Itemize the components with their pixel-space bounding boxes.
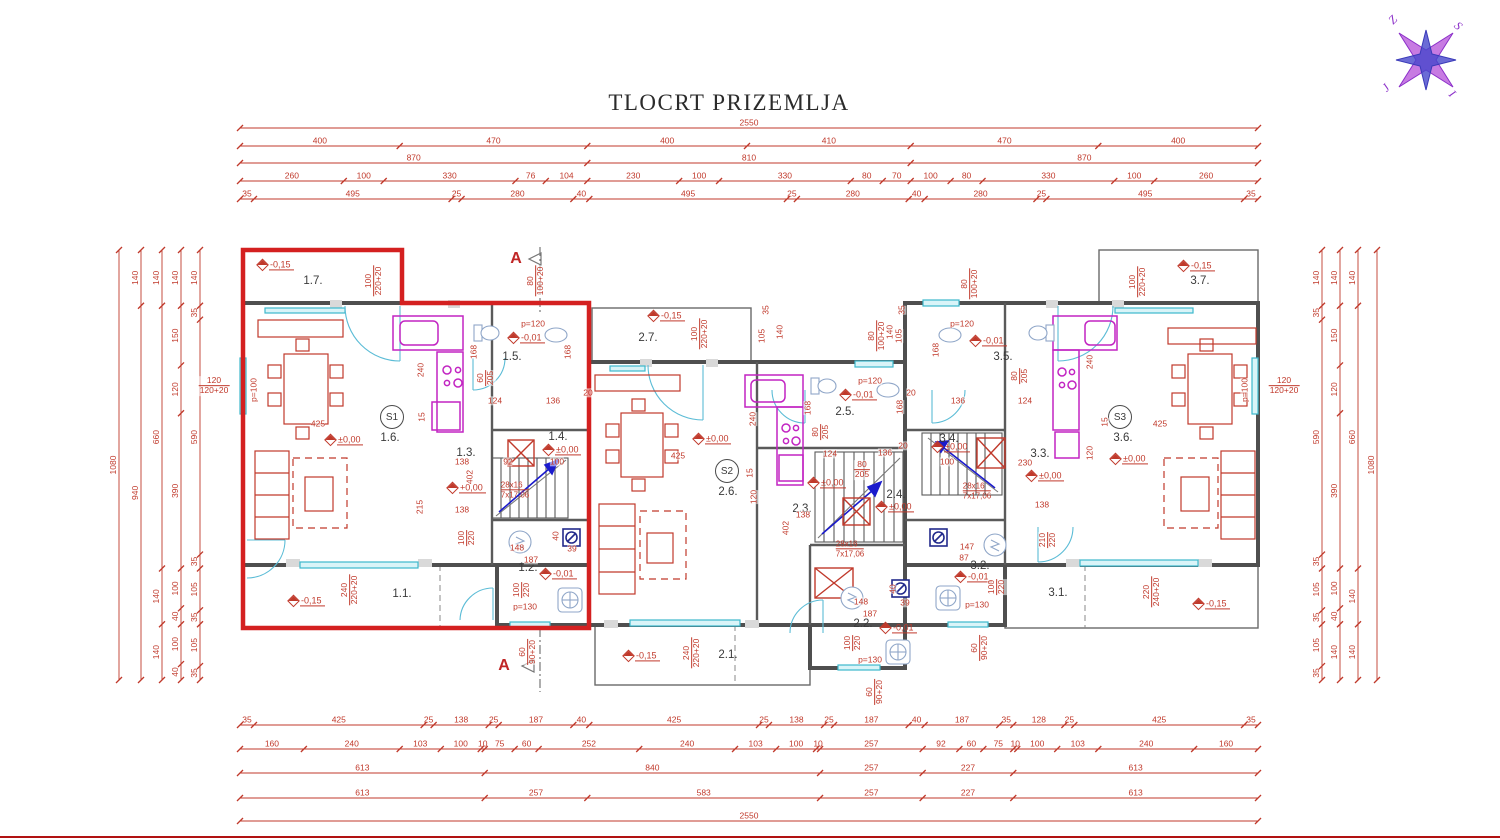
unit-badge: S2 — [715, 459, 739, 483]
annotation-denominator: 90+20 — [981, 635, 990, 661]
dimension-annotation: 210220 — [1038, 532, 1058, 548]
dimension-annotation: 105 — [894, 329, 903, 343]
dimension-annotation: 220240+20 — [1142, 577, 1162, 608]
annotation-denominator: 240+20 — [1153, 577, 1162, 608]
elevation-marker: -0,01 — [541, 568, 577, 579]
annotation-denominator: 120+20 — [199, 387, 230, 396]
dimension-annotation: 402 — [781, 521, 790, 535]
elevation-diamond-icon — [1192, 598, 1205, 611]
dimension-annotation: 100220 — [987, 579, 1007, 595]
annotation-denominator: 220+20 — [1139, 267, 1148, 298]
elevation-marker: -0,15 — [1194, 598, 1230, 609]
dimension-annotation: 100 — [550, 457, 564, 466]
dimension-annotation: 120 — [1085, 446, 1094, 460]
dimension-annotation: 124 — [823, 449, 837, 458]
elevation-value: -0,01 — [982, 335, 1007, 346]
unit-badge: S3 — [1108, 405, 1132, 429]
dimension-annotation: 148 — [854, 597, 868, 606]
elevation-diamond-icon — [692, 433, 705, 446]
stair-label: 28x167x17,06 — [963, 481, 991, 500]
elevation-value: ±0,00 — [1122, 453, 1148, 464]
dimension-annotation: 80205 — [1010, 368, 1030, 384]
annotation-denominator: 220+20 — [701, 319, 710, 350]
annotation-denominator: 120+20 — [1269, 387, 1300, 396]
dimension-annotation: 100220+20 — [1128, 267, 1148, 298]
elevation-marker: -0,01 — [509, 332, 545, 343]
dimension-annotation: p=130 — [858, 655, 882, 664]
dimension-annotation: 240220+20 — [682, 638, 702, 669]
dimension-annotation: 15 — [745, 468, 754, 477]
dimension-annotation: 100 — [940, 457, 954, 466]
elevation-marker: ±0,00 — [877, 501, 914, 512]
dimension-annotation: 136 — [546, 396, 560, 405]
elevation-marker: ±0,00 — [933, 441, 970, 452]
dimension-annotation: 100220 — [512, 582, 532, 598]
elevation-value: -0,15 — [269, 259, 294, 270]
elevation-diamond-icon — [324, 434, 337, 447]
dimension-annotation: 215 — [415, 500, 424, 514]
room-label: 3.1. — [1048, 587, 1067, 599]
dimension-annotation: 136 — [878, 448, 892, 457]
dimension-annotation: 40 — [888, 584, 897, 593]
dimension-annotation: 138 — [455, 457, 469, 466]
room-label: 3.5. — [993, 351, 1012, 363]
annotation-denominator: 100+20 — [971, 269, 980, 300]
elevation-diamond-icon — [287, 595, 300, 608]
annotation-denominator: 220+20 — [351, 575, 360, 606]
elevation-value: ±0,00 — [555, 444, 581, 455]
elevation-diamond-icon — [931, 441, 944, 454]
dimension-annotation: 120120+20 — [199, 376, 230, 396]
dimension-annotation: 6090+20 — [518, 639, 538, 665]
compass-letter: S — [1451, 19, 1466, 34]
dimension-annotation: 138 — [455, 505, 469, 514]
elevation-value: ±0,00 — [1038, 470, 1064, 481]
annotation-denominator: 220+20 — [693, 638, 702, 669]
room-label: 1.7. — [303, 275, 322, 287]
elevation-value: ±0,00 — [888, 501, 914, 512]
section-marker-letter: A — [510, 250, 522, 268]
dimension-annotation: p=100 — [1240, 378, 1249, 402]
dimension-annotation: 168 — [469, 345, 478, 359]
page-title: TLOCRT PRIZEMLJA — [608, 90, 849, 116]
stair-label: 28x167x17,06 — [501, 480, 529, 499]
elevation-marker: -0,01 — [881, 622, 917, 633]
dimension-annotation: 168 — [931, 343, 940, 357]
compass-letter: J — [1379, 81, 1393, 95]
elevation-value: -0,01 — [520, 332, 545, 343]
annotation-denominator: 220 — [1049, 532, 1058, 548]
dimension-annotation: 138 — [796, 510, 810, 519]
dimension-annotation: p=120 — [858, 376, 882, 385]
elevation-value: -0,15 — [1205, 598, 1230, 609]
annotation-denominator: 205 — [1021, 368, 1030, 384]
annotation-denominator: 90+20 — [529, 639, 538, 665]
elevation-marker: ±0,00 — [544, 444, 581, 455]
elevation-marker: -0,01 — [841, 389, 877, 400]
dimension-annotation: p=100 — [249, 378, 258, 402]
elevation-marker: ±0,00 — [326, 434, 363, 445]
room-label: 2.6. — [718, 486, 737, 498]
dimension-annotation: 6090+20 — [865, 679, 885, 705]
elevation-diamond-icon — [1177, 260, 1190, 273]
stair-riser-size: 7x17,06 — [836, 550, 864, 559]
elevation-diamond-icon — [446, 482, 459, 495]
dimension-annotation: 40 — [551, 531, 560, 540]
dimension-annotation: 140 — [775, 325, 784, 339]
dimension-annotation: 60205 — [476, 370, 496, 386]
dimension-annotation: 168 — [803, 401, 812, 415]
room-label: 2.4. — [886, 489, 905, 501]
dimension-annotation: p=120 — [521, 319, 545, 328]
dimension-annotation: 100220+20 — [364, 266, 384, 297]
annotation-denominator: 205 — [854, 471, 870, 480]
room-label: 1.4. — [548, 431, 567, 443]
dimension-annotation: 39 — [567, 544, 576, 553]
room-label: 3.2. — [970, 560, 989, 572]
elevation-value: ±0,00 — [820, 477, 846, 488]
elevation-diamond-icon — [542, 444, 555, 457]
elevation-value: -0,15 — [1190, 260, 1215, 271]
dimension-annotation: 240 — [748, 412, 757, 426]
elevation-diamond-icon — [539, 568, 552, 581]
elevation-diamond-icon — [839, 389, 852, 402]
dimension-annotation: 20 — [898, 441, 907, 450]
room-label: 2.2. — [853, 618, 872, 630]
elevation-diamond-icon — [1109, 453, 1122, 466]
dimension-annotation: 80205 — [854, 460, 870, 480]
dimension-annotation: 87 — [959, 553, 968, 562]
dimension-annotation: 240220+20 — [340, 575, 360, 606]
dimension-annotation: 15 — [1100, 417, 1109, 426]
dimension-annotation: 35 — [761, 305, 770, 314]
dimension-annotation: 147 — [960, 542, 974, 551]
dimension-annotation: 6090+20 — [970, 635, 990, 661]
annotation-denominator: 220+20 — [375, 266, 384, 297]
stair-label: 28x167x17,06 — [836, 539, 864, 558]
elevation-diamond-icon — [969, 335, 982, 348]
room-label: 2.5. — [835, 406, 854, 418]
elevation-marker: ±0,00 — [1111, 453, 1148, 464]
elevation-diamond-icon — [256, 259, 269, 272]
elevation-marker: -0,15 — [258, 259, 294, 270]
dimension-annotation: 35 — [897, 305, 906, 314]
dimension-annotation: 240 — [416, 363, 425, 377]
elevation-value: -0,15 — [660, 310, 685, 321]
elevation-diamond-icon — [879, 622, 892, 635]
dimension-annotation: 105 — [757, 329, 766, 343]
dimension-annotation: 39 — [900, 598, 909, 607]
elevation-diamond-icon — [807, 477, 820, 490]
dimension-annotation: p=120 — [950, 319, 974, 328]
stair-riser-size: 7x17,06 — [501, 491, 529, 500]
compass-letter: Z — [1385, 12, 1400, 27]
room-label: 3.3. — [1030, 448, 1049, 460]
dimension-annotation: 20 — [906, 388, 915, 397]
elevation-marker: -0,15 — [649, 310, 685, 321]
room-label: 1.6. — [380, 432, 399, 444]
elevation-marker: -0,15 — [1179, 260, 1215, 271]
dimension-annotation: 100220 — [843, 635, 863, 651]
dimension-annotation: 100220 — [457, 530, 477, 546]
dimension-annotation: 120120+20 — [1269, 376, 1300, 396]
room-label: 1.5. — [502, 351, 521, 363]
dimension-annotation: 140 — [885, 325, 894, 339]
elevation-value: -0,01 — [852, 389, 877, 400]
page-bottom-frame — [0, 836, 1500, 838]
dimension-annotation: p=130 — [513, 602, 537, 611]
elevation-value: -0,15 — [300, 595, 325, 606]
elevation-diamond-icon — [1025, 470, 1038, 483]
room-label: 2.1. — [718, 649, 737, 661]
room-label: 3.6. — [1113, 432, 1132, 444]
elevation-marker: ±0,00 — [809, 477, 846, 488]
dimension-annotation: 425 — [1153, 419, 1167, 428]
dimension-annotation: 15 — [417, 412, 426, 421]
dimension-annotation: 402 — [465, 470, 474, 484]
dimension-annotation: p=130 — [965, 600, 989, 609]
elevation-diamond-icon — [647, 310, 660, 323]
annotation-denominator: 205 — [822, 424, 831, 440]
annotation-denominator: 100+20 — [537, 266, 546, 297]
dimension-annotation: 168 — [895, 400, 904, 414]
dimension-annotation: 148 — [510, 543, 524, 552]
floor-plan-page: 2550400470400410470400870810870260100330… — [0, 0, 1500, 840]
dimension-annotation: 80205 — [811, 424, 831, 440]
elevation-value: ±0,00 — [337, 434, 363, 445]
elevation-value: ±0,00 — [944, 441, 970, 452]
dimension-annotation: 168 — [563, 345, 572, 359]
dimension-annotation: 136 — [951, 396, 965, 405]
room-label: 1.1. — [392, 588, 411, 600]
dimension-annotation: 187 — [524, 555, 538, 564]
dimension-annotation: 138 — [1035, 500, 1049, 509]
dimension-annotation: 124 — [488, 396, 502, 405]
dimension-annotation: 20 — [583, 388, 592, 397]
elevation-diamond-icon — [507, 332, 520, 345]
dimension-annotation: 230 — [1018, 458, 1032, 467]
dimension-annotation: 80100+20 — [960, 269, 980, 300]
annotation-denominator: 220 — [468, 530, 477, 546]
elevation-value: -0,01 — [892, 622, 917, 633]
dimension-annotation: 80100+20 — [526, 266, 546, 297]
dimension-annotation: 124 — [1018, 396, 1032, 405]
dimension-annotation: 100220+20 — [690, 319, 710, 350]
stair-riser-count: 28x16 — [963, 481, 991, 491]
room-label: 2.7. — [638, 332, 657, 344]
elevation-value: -0,01 — [552, 568, 577, 579]
elevation-value: -0,15 — [635, 650, 660, 661]
elevation-diamond-icon — [622, 650, 635, 663]
dimension-annotation: 187 — [863, 609, 877, 618]
annotation-denominator: 220 — [854, 635, 863, 651]
annotation-denominator: 205 — [487, 370, 496, 386]
annotation-denominator: 220 — [998, 579, 1007, 595]
elevation-marker: ±0,00 — [1027, 470, 1064, 481]
compass-letter: I — [1445, 87, 1458, 100]
stair-riser-size: 7x17,06 — [963, 492, 991, 501]
dimension-annotation: 120 — [749, 490, 758, 504]
annotation-denominator: 90+20 — [876, 679, 885, 705]
dimension-annotation: 425 — [671, 451, 685, 460]
stair-riser-count: 28x16 — [501, 480, 529, 490]
elevation-value: ±0,00 — [705, 433, 731, 444]
elevation-diamond-icon — [875, 501, 888, 514]
elevation-diamond-icon — [954, 571, 967, 584]
elevation-marker: ±0,00 — [694, 433, 731, 444]
elevation-marker: -0,15 — [289, 595, 325, 606]
dimension-annotation: 240 — [1085, 355, 1094, 369]
dimension-annotation: 425 — [311, 419, 325, 428]
elevation-marker: -0,15 — [624, 650, 660, 661]
room-label: 3.7. — [1190, 275, 1209, 287]
section-marker-letter: A — [498, 657, 510, 675]
plan-labels: TLOCRT PRIZEMLJA 1.7.1.5.1.6.1.4.1.3.1.2… — [0, 0, 1500, 840]
unit-badge: S1 — [380, 405, 404, 429]
elevation-marker: -0,01 — [971, 335, 1007, 346]
dimension-annotation: 92 — [503, 457, 512, 466]
annotation-denominator: 220 — [523, 582, 532, 598]
stair-riser-count: 28x16 — [836, 539, 864, 549]
